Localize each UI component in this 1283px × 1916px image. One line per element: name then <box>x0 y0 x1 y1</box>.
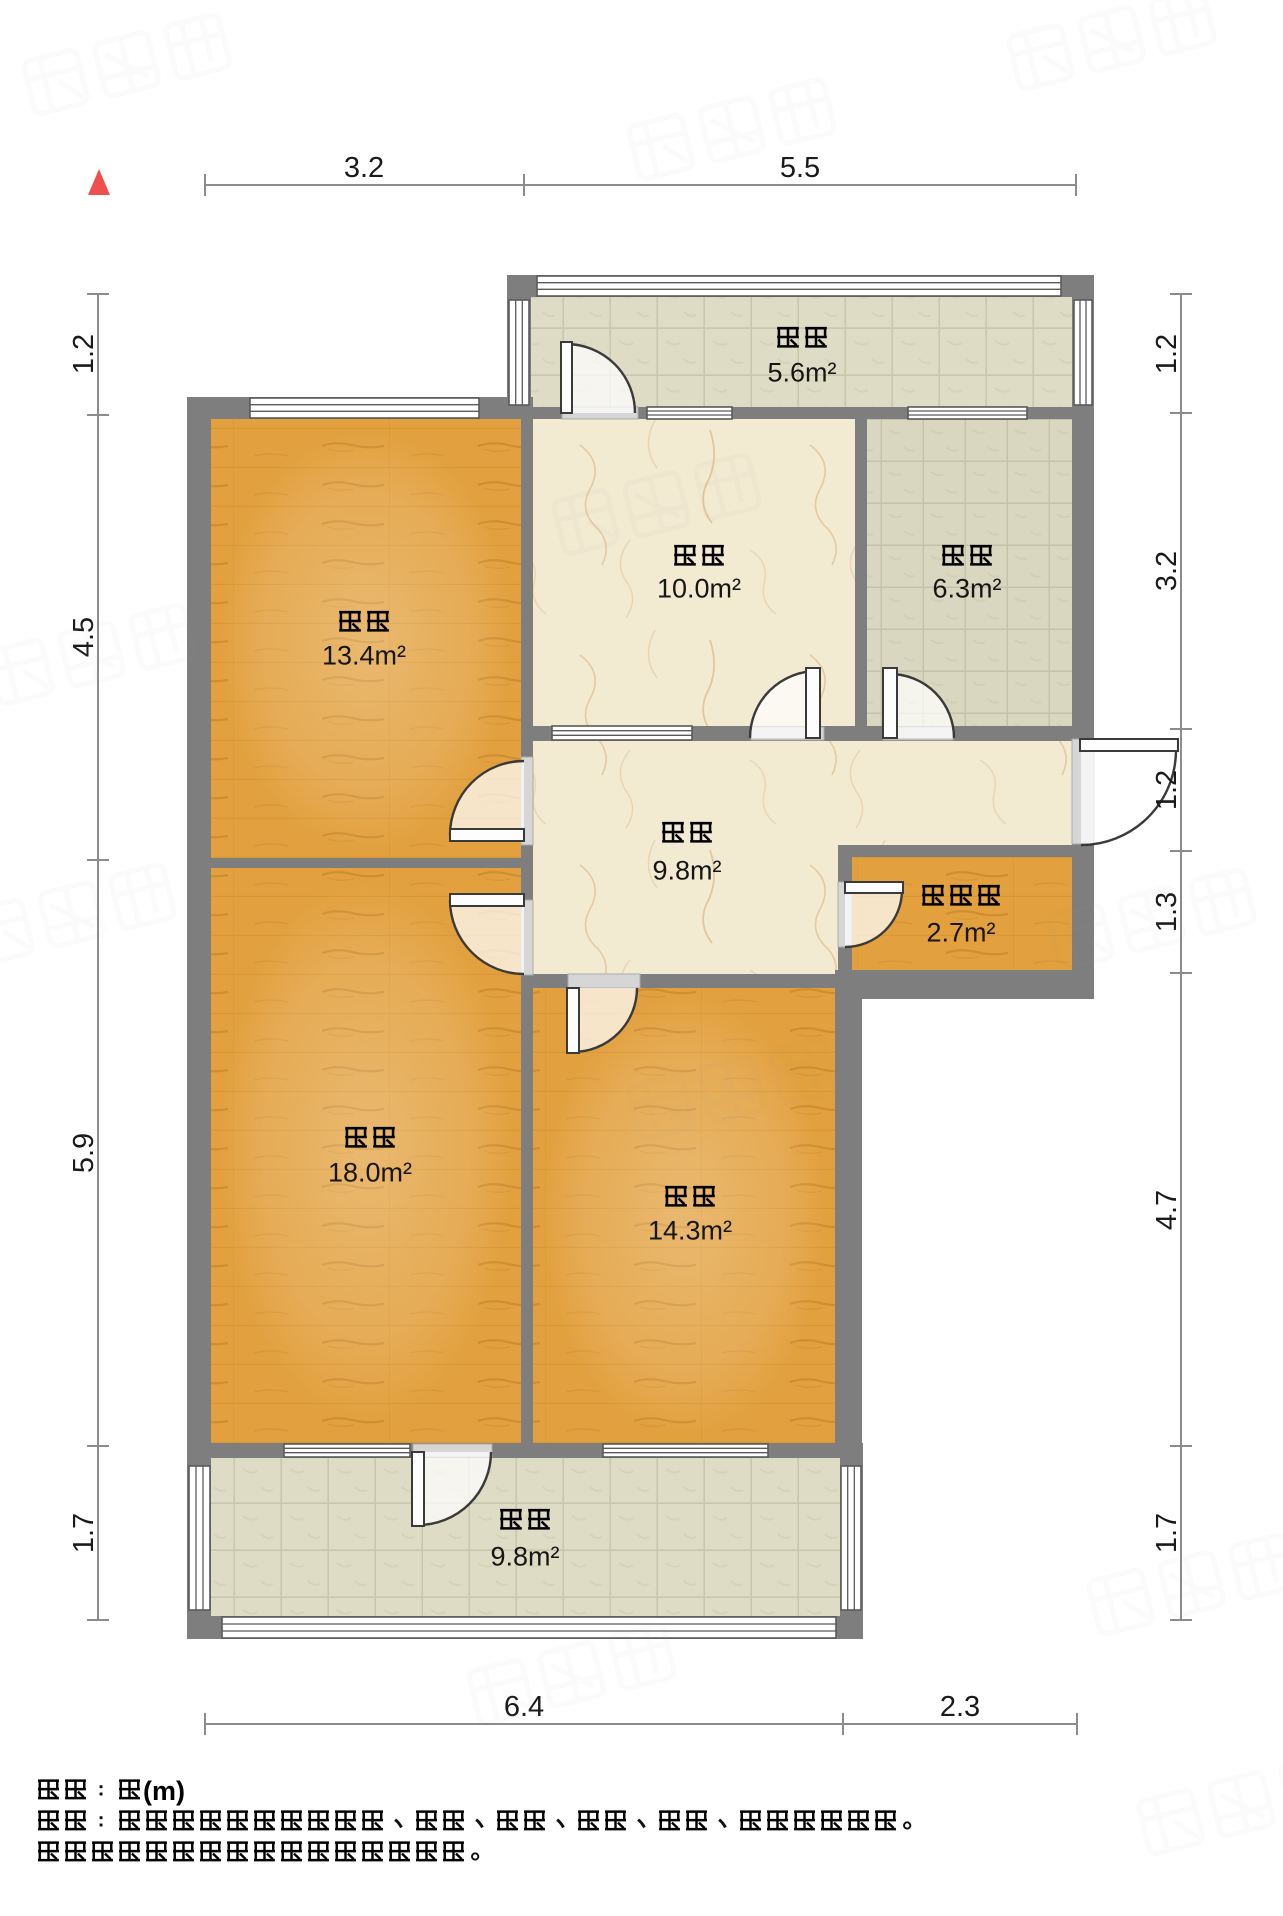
svg-text:18.0m²: 18.0m² <box>328 1158 412 1188</box>
svg-text:9.8m²: 9.8m² <box>652 856 721 886</box>
svg-text:1.7: 1.7 <box>1151 1513 1183 1553</box>
svg-text:6.3m²: 6.3m² <box>932 574 1001 604</box>
svg-text:5.6m²: 5.6m² <box>767 358 836 388</box>
svg-text:2.7m²: 2.7m² <box>926 918 995 948</box>
svg-text:1.2: 1.2 <box>1151 770 1183 810</box>
svg-text:2.3: 2.3 <box>940 1691 980 1723</box>
svg-text:5.9: 5.9 <box>68 1133 100 1173</box>
svg-text:3.2: 3.2 <box>344 152 384 184</box>
svg-text:5.5: 5.5 <box>780 152 820 184</box>
svg-text:9.8m²: 9.8m² <box>490 1542 559 1572</box>
svg-text:3.2: 3.2 <box>1151 551 1183 591</box>
svg-text:(m): (m) <box>143 1776 185 1806</box>
svg-text:10.0m²: 10.0m² <box>657 574 741 604</box>
svg-text:1.7: 1.7 <box>68 1513 100 1553</box>
svg-text:13.4m²: 13.4m² <box>322 641 406 671</box>
svg-text:1.2: 1.2 <box>1151 334 1183 374</box>
svg-text:14.3m²: 14.3m² <box>648 1216 732 1246</box>
svg-text:4.7: 4.7 <box>1151 1190 1183 1230</box>
svg-text:1.2: 1.2 <box>68 334 100 374</box>
